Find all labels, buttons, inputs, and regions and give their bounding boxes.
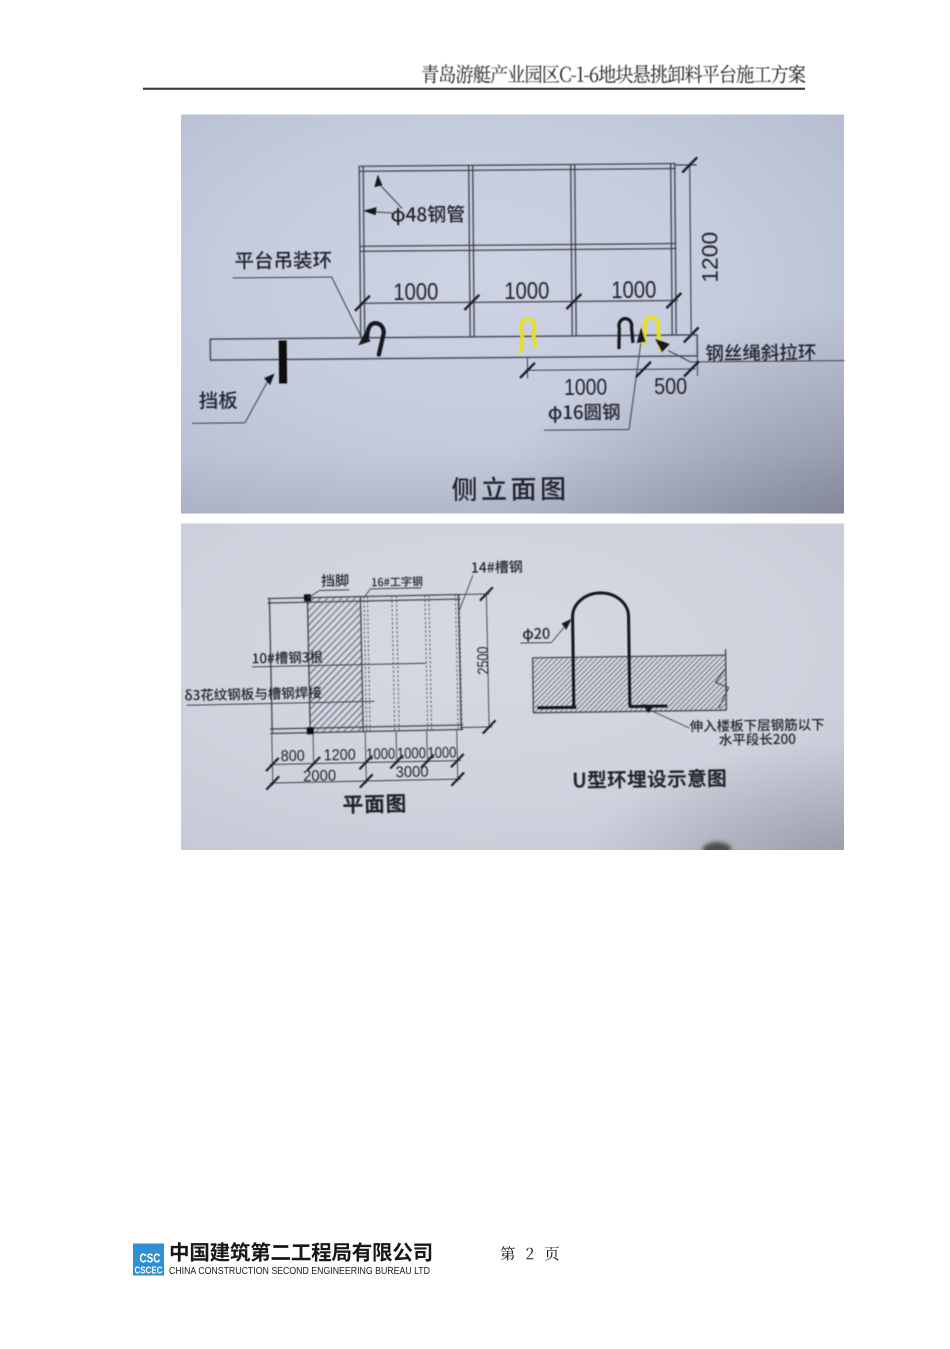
svg-text:2500: 2500	[475, 646, 493, 674]
svg-text:3000: 3000	[395, 764, 428, 782]
svg-text:CSCEC: CSCEC	[135, 1266, 163, 1277]
svg-text:1000: 1000	[393, 279, 438, 306]
svg-text:1000: 1000	[366, 746, 395, 764]
svg-text:1000: 1000	[564, 374, 607, 400]
svg-text:1000: 1000	[397, 745, 426, 763]
svg-text:1000: 1000	[611, 277, 656, 304]
svg-text:CHINA CONSTRUCTION SECOND ENGI: CHINA CONSTRUCTION SECOND ENGINEERING BU…	[169, 1266, 430, 1277]
svg-text:500: 500	[654, 373, 687, 399]
svg-text:1000: 1000	[504, 278, 549, 305]
svg-text:1200: 1200	[324, 747, 356, 765]
svg-text:1200: 1200	[697, 232, 722, 283]
svg-text:1000: 1000	[427, 745, 456, 763]
svg-text:2000: 2000	[303, 768, 336, 786]
svg-text:CSC: CSC	[140, 1252, 161, 1266]
svg-text:800: 800	[281, 748, 305, 766]
